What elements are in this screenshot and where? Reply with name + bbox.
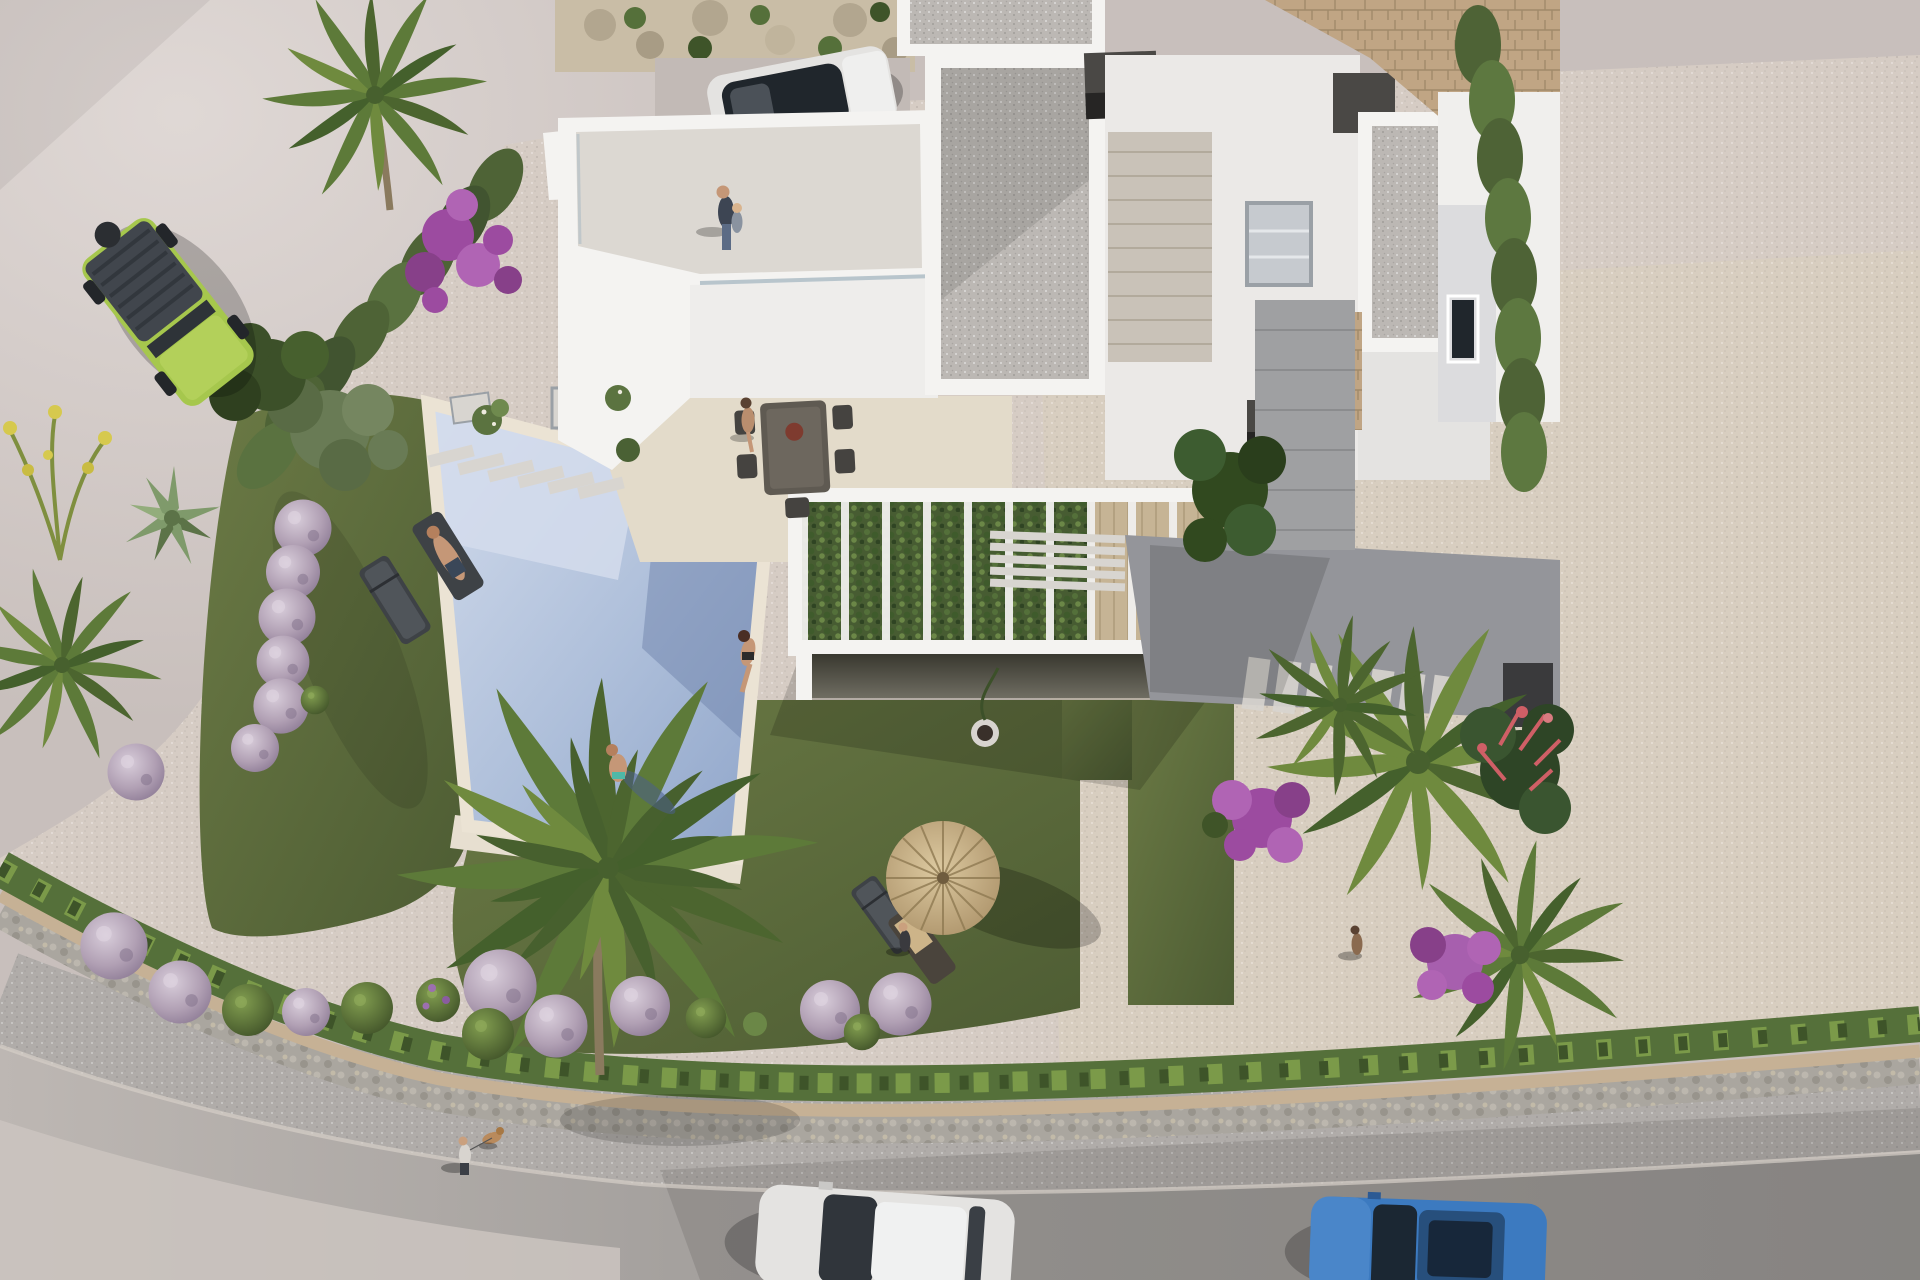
glass-balustrade-left: [578, 134, 580, 244]
bikini: [612, 772, 625, 779]
blue-car-hood: [1308, 1196, 1371, 1280]
straw-parasol: [886, 821, 1000, 935]
terrace-floor: [576, 124, 922, 274]
skylight: [1245, 201, 1313, 287]
white-car-windshield: [818, 1194, 878, 1280]
blue-car-windshield: [1371, 1204, 1418, 1280]
white-car-roof: [870, 1201, 967, 1280]
aerial-villa-render: [0, 0, 1920, 1280]
front-wall-face: [690, 278, 938, 398]
pergola-column-left: [796, 652, 812, 700]
blue-car-sunroof: [1427, 1220, 1493, 1278]
pergola-beam-top: [788, 488, 1248, 502]
neighbor-driveway: [1255, 300, 1355, 550]
render-canvas: [0, 0, 1920, 1280]
neighbor-window: [1452, 300, 1474, 358]
